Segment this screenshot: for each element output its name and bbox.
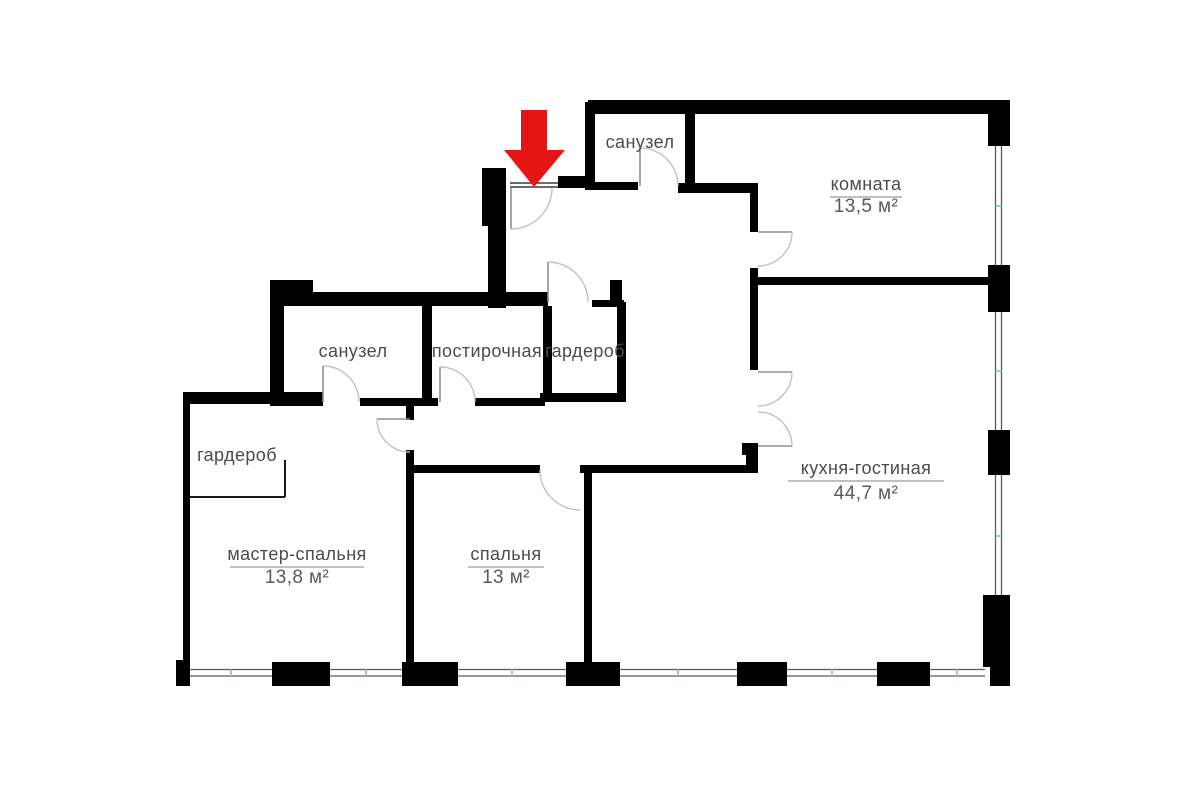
room-label-kitchen: кухня-гостиная 44,7 м² [788,458,944,504]
room-labels: санузел комната 13,5 м² санузел постироч… [197,132,944,588]
doors [323,148,792,510]
room-label-sanuzel-mid: санузел [319,341,388,361]
master-bedroom-door [377,419,410,452]
room-area: 44,7 м² [834,483,898,504]
floor-plan-svg: санузел комната 13,5 м² санузел постироч… [0,0,1200,802]
room-name: гардероб [197,445,277,465]
room-name: санузел [606,132,675,152]
room-label-garderob-left: гардероб [197,445,277,465]
room-area: 13 м² [482,567,530,588]
wardrobe-left-partition [190,460,285,497]
entrance-arrow-icon [504,110,565,187]
room-name: гардероб [545,341,625,361]
room-label-komnata: комната 13,5 м² [830,174,902,217]
room-label-postirochnaya: постирочная [432,341,542,361]
bedroom-door [540,470,580,510]
room-label-sanuzel-top: санузел [606,132,675,152]
bathroom-mid-door [323,366,359,402]
room-name: комната [831,174,902,194]
wardrobe-mid-door [548,262,588,302]
room-label-spalnya: спальня 13 м² [468,544,544,588]
window-ticks [231,206,1002,676]
laundry-door [440,367,475,402]
room-label-master: мастер-спальня 13,8 м² [227,544,366,588]
room-name: кухня-гостиная [801,458,932,478]
room-name: постирочная [432,341,542,361]
komnata-door [758,232,792,266]
floor-plan-page: санузел комната 13,5 м² санузел постироч… [0,0,1200,802]
kitchen-double-door [758,372,792,446]
room-name: мастер-спальня [227,544,366,564]
room-area: 13,8 м² [265,567,329,588]
room-name: спальня [470,544,541,564]
bathroom-top-door [640,148,678,186]
entrance-door [510,183,558,229]
room-label-garderob-mid: гардероб [545,341,625,361]
room-name: санузел [319,341,388,361]
room-area: 13,5 м² [834,196,898,217]
windows [190,146,1002,676]
